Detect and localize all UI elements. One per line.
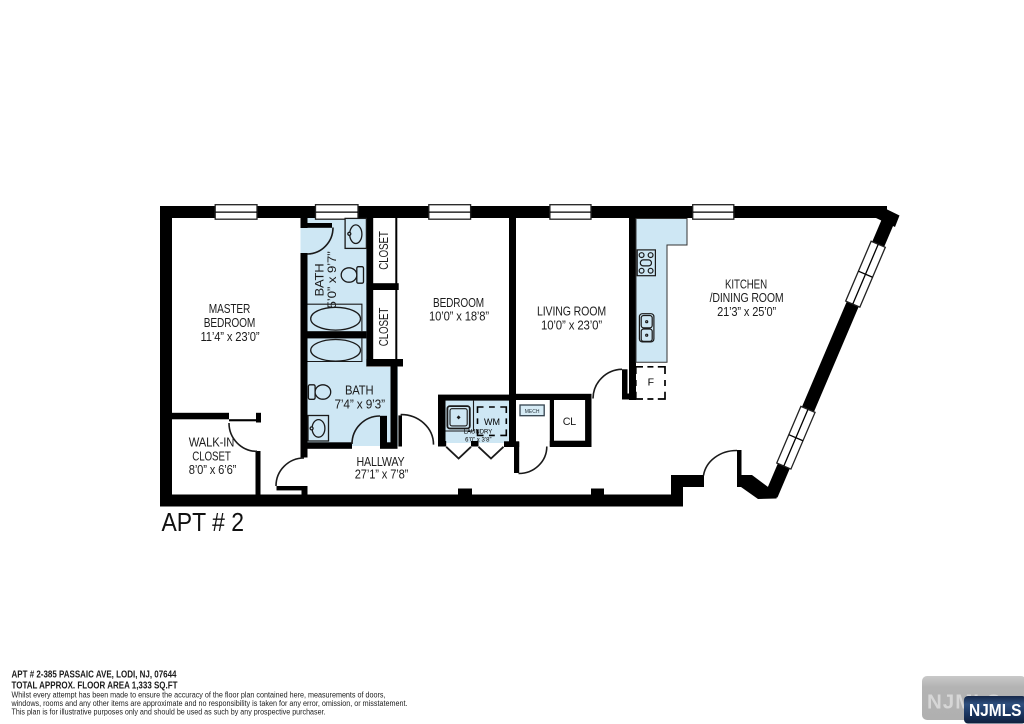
svg-text:5’0” x 9’7”: 5’0” x 9’7” xyxy=(327,251,339,308)
svg-text:7’4” x 9’3”: 7’4” x 9’3” xyxy=(334,398,385,412)
svg-text:6’0” x 3’8”: 6’0” x 3’8” xyxy=(465,438,491,444)
svg-text:This plan is for illustrative: This plan is for illustrative purposes o… xyxy=(12,708,326,717)
svg-text:WALK-IN: WALK-IN xyxy=(189,436,235,450)
svg-text:27’1” x 7’8”: 27’1” x 7’8” xyxy=(355,468,409,482)
svg-text:NJMLS: NJMLS xyxy=(969,700,1022,720)
svg-text:CLOSET: CLOSET xyxy=(192,449,231,463)
svg-text:8’0” x 6’6”: 8’0” x 6’6” xyxy=(189,463,237,477)
svg-text:BATH: BATH xyxy=(345,383,374,397)
svg-text:10’0” x 18’8”: 10’0” x 18’8” xyxy=(429,310,489,324)
svg-text:LAUNDRY: LAUNDRY xyxy=(464,430,493,436)
svg-text:CLOSET: CLOSET xyxy=(376,231,391,270)
svg-text:11’4” x 23’0”: 11’4” x 23’0” xyxy=(201,330,260,344)
svg-text:CLOSET: CLOSET xyxy=(376,308,391,347)
svg-text:KITCHEN: KITCHEN xyxy=(725,277,767,291)
svg-text:WM: WM xyxy=(484,417,500,427)
svg-text:/DINING ROOM: /DINING ROOM xyxy=(710,291,784,305)
svg-text:BEDROOM: BEDROOM xyxy=(204,316,256,330)
svg-text:BATH: BATH xyxy=(315,264,327,297)
svg-text:MECH: MECH xyxy=(525,409,540,415)
svg-text:LIVING ROOM: LIVING ROOM xyxy=(537,305,606,319)
svg-text:10’0” x 23’0”: 10’0” x 23’0” xyxy=(541,319,602,333)
svg-text:CL: CL xyxy=(563,416,576,428)
svg-text:MASTER: MASTER xyxy=(209,302,251,316)
svg-text:APT # 2-385 PASSAIC AVE, LODI,: APT # 2-385 PASSAIC AVE, LODI, NJ, 07644 xyxy=(12,670,177,681)
svg-text:F: F xyxy=(648,377,654,389)
svg-text:APT # 2: APT # 2 xyxy=(162,507,245,537)
svg-text:BEDROOM: BEDROOM xyxy=(433,296,484,310)
svg-text:21’3” x 25’0”: 21’3” x 25’0” xyxy=(717,305,776,319)
